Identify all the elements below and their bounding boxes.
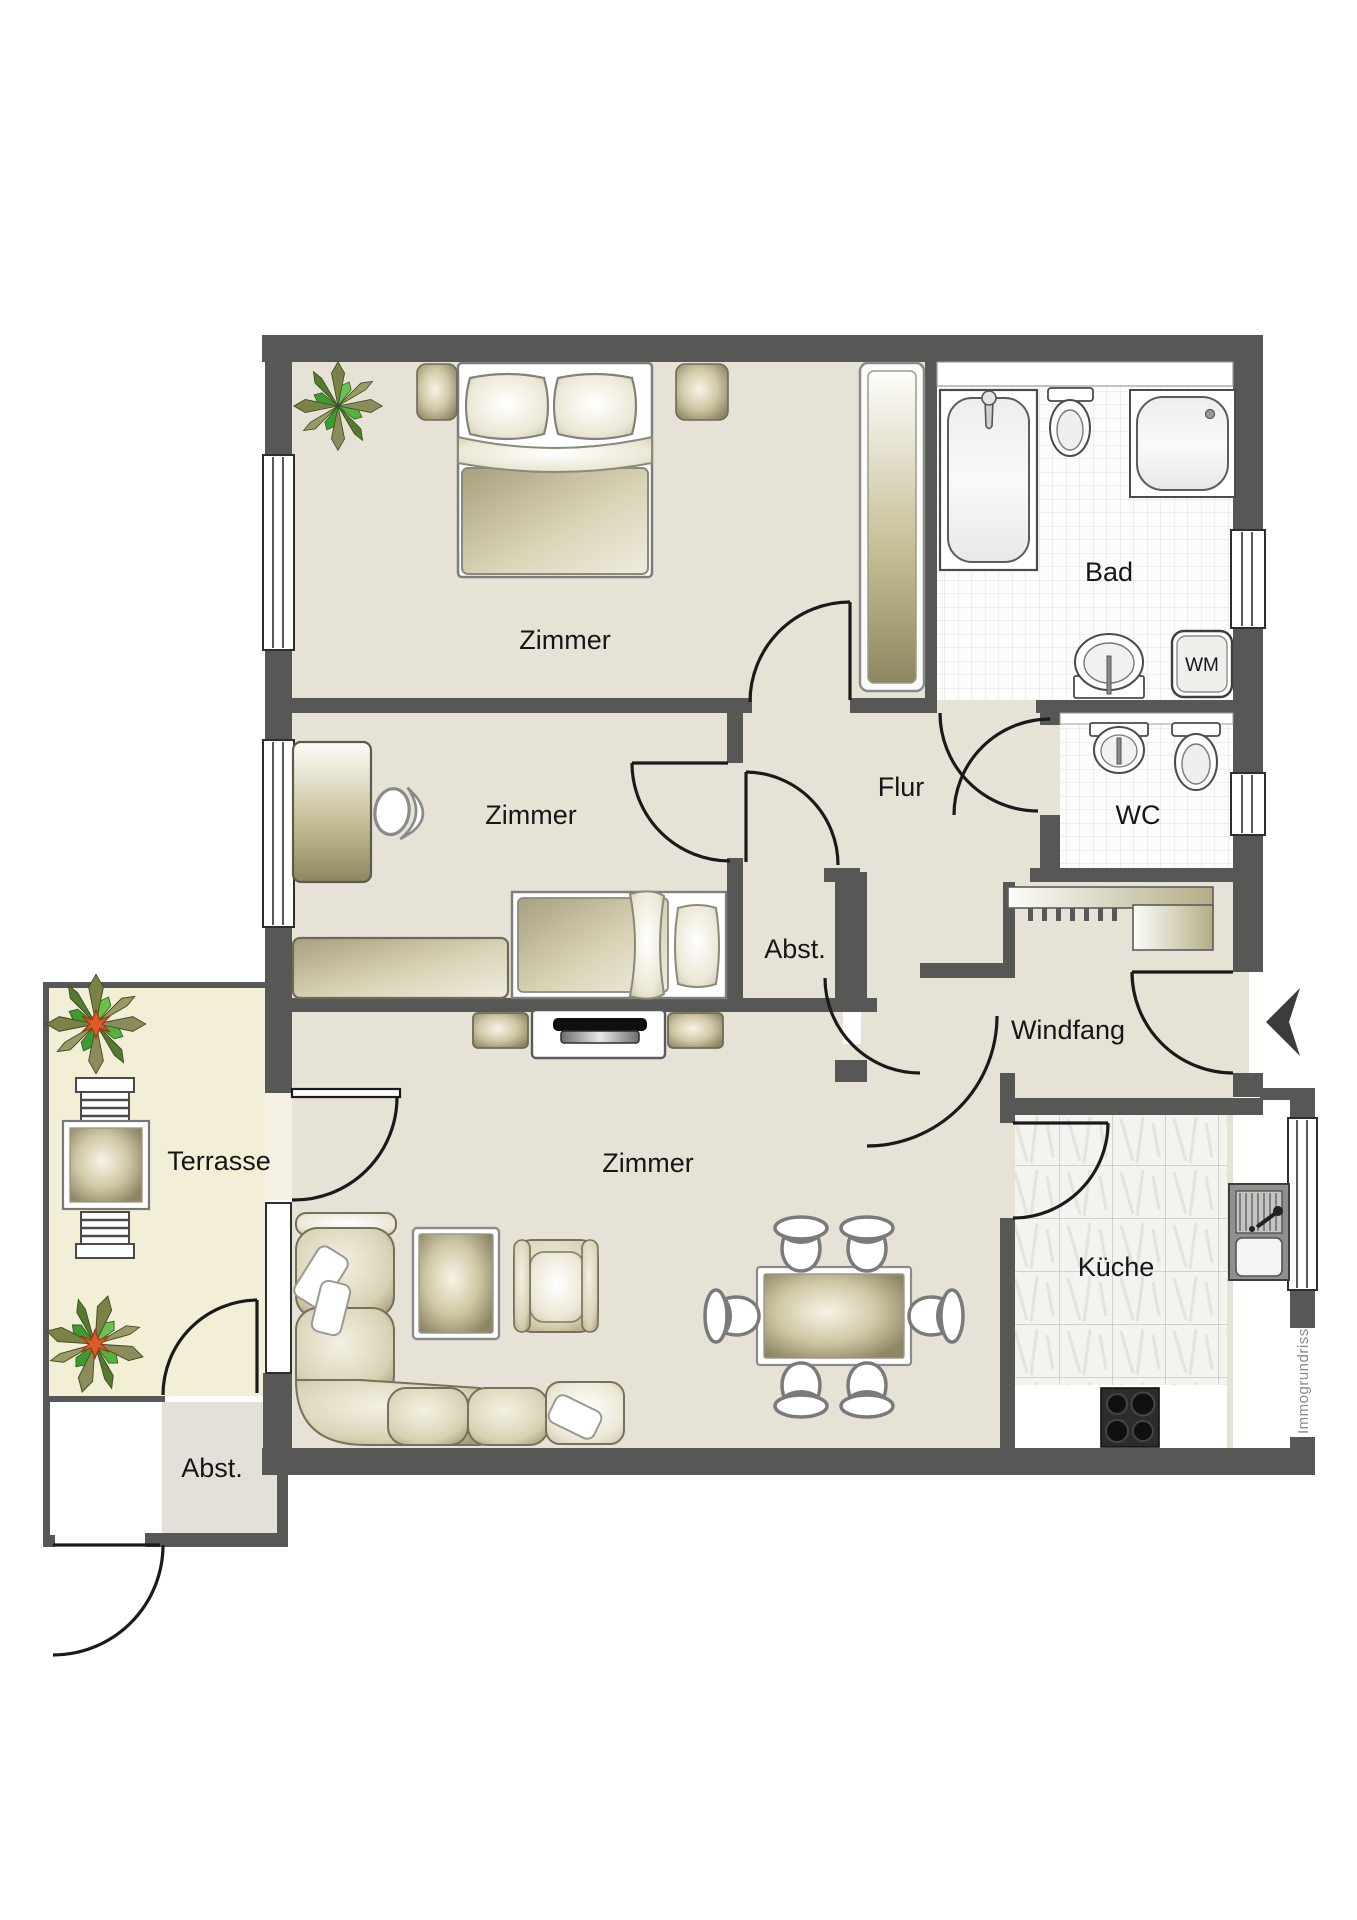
- wall-left-3: [265, 925, 292, 1093]
- pillow: [466, 374, 548, 439]
- window-bedroom1-left: [263, 455, 294, 650]
- storage-bottom-wall-bottom: [145, 1533, 288, 1547]
- drain-icon: [1206, 410, 1215, 419]
- wall-vestibule-divider: [920, 963, 1015, 978]
- terrace-table: [63, 1121, 149, 1209]
- window-wc-right: [1231, 773, 1265, 835]
- wall-bedroom1-bottom-right: [850, 698, 937, 713]
- label-kitchen: Küche: [1078, 1252, 1155, 1282]
- wall-bottom: [262, 1448, 1315, 1475]
- label-vestibule: Windfang: [1011, 1015, 1125, 1045]
- speaker-left: [473, 1013, 528, 1048]
- single-bed: [512, 891, 726, 998]
- wall-right-4: [1233, 1073, 1263, 1097]
- kitchen-sink: [1229, 1184, 1289, 1280]
- sink-basin: [1236, 1238, 1282, 1276]
- window-bedroom2-left: [263, 740, 294, 927]
- wall-storage-mid-top-stub: [824, 868, 860, 882]
- entrance-threshold: [1233, 972, 1249, 1073]
- wall-right-3: [1233, 833, 1263, 972]
- tv-lowboard: [532, 1010, 665, 1058]
- toilet-bath: [1048, 388, 1093, 456]
- watermark-text: Immogrundriss: [1295, 1328, 1312, 1434]
- pillow: [675, 905, 719, 987]
- nightstand: [676, 364, 728, 420]
- window-living-left: [266, 1203, 291, 1373]
- burner-icon: [1106, 1420, 1128, 1442]
- wardrobe-tall: [860, 363, 924, 691]
- wall-storage-mid-left: [727, 858, 743, 1012]
- wall-kitchen-top: [1015, 1098, 1263, 1115]
- window-band-bath-top: [937, 362, 1233, 386]
- passage-wall-left: [43, 1402, 50, 1547]
- washing-machine: WM: [1172, 631, 1232, 697]
- wall-right-1: [1233, 335, 1263, 532]
- door-leaf-terrace: [292, 1089, 400, 1097]
- pillow: [554, 374, 636, 439]
- wall-bath-bottom: [1036, 700, 1233, 713]
- wall-kitchen-left-2: [1000, 1218, 1015, 1448]
- terrace-border-top: [43, 982, 267, 988]
- kitchen-tile-floor: [1015, 1115, 1227, 1385]
- burner-icon: [1132, 1393, 1155, 1416]
- speaker-right: [668, 1013, 723, 1048]
- bolster-pillow: [630, 891, 664, 998]
- washbasin-bath: [1074, 634, 1144, 698]
- wall-bedrooms-divider: [292, 698, 752, 713]
- faucet-icon: [1117, 738, 1121, 764]
- label-wc: WC: [1116, 800, 1161, 830]
- tv-icon: [553, 1018, 647, 1031]
- wall-wc-bottom: [1030, 868, 1233, 882]
- coat-rack-cabinet: [1133, 905, 1213, 950]
- entrance-arrow-icon: [1266, 988, 1300, 1056]
- wall-left-1: [265, 335, 292, 457]
- floorplan-canvas: WM: [0, 0, 1357, 1920]
- nightstand: [417, 364, 457, 420]
- bathtub: [940, 390, 1037, 570]
- wall-right-step: [1260, 1088, 1292, 1100]
- storage-bottom-wall-right: [277, 1393, 288, 1547]
- stove: [1101, 1388, 1159, 1447]
- label-bath: Bad: [1085, 557, 1133, 587]
- desk: [293, 742, 371, 882]
- wall-kitchen-left-1: [1000, 1073, 1015, 1123]
- label-bedroom1: Zimmer: [519, 625, 610, 655]
- toilet-wc: [1172, 723, 1220, 790]
- label-storage-mid: Abst.: [764, 934, 826, 964]
- faucet-icon: [1107, 656, 1111, 694]
- burner-icon: [1107, 1394, 1127, 1414]
- floorplan-page: WM: [0, 0, 1357, 1920]
- label-living: Zimmer: [602, 1148, 693, 1178]
- wall-right-2: [1233, 626, 1263, 777]
- window-bath-right: [1231, 530, 1265, 628]
- door-arc-garden-gate: [53, 1545, 163, 1655]
- armchair: [514, 1240, 598, 1332]
- wall-column-2: [835, 1060, 867, 1082]
- label-bedroom2: Zimmer: [485, 800, 576, 830]
- wall-column-1: [835, 872, 867, 1012]
- wall-kitchen-right-1: [1290, 1088, 1315, 1120]
- burner-icon: [1133, 1421, 1153, 1441]
- terrace-bench-top: [76, 1078, 134, 1124]
- sideboard: [293, 938, 508, 998]
- window-kitchen-right: [1288, 1118, 1317, 1290]
- shower: [1130, 390, 1235, 497]
- washing-machine-label: WM: [1185, 655, 1219, 676]
- label-storage-bottom: Abst.: [181, 1453, 243, 1483]
- dining-table: [764, 1274, 904, 1358]
- wall-kitchen-right-2: [1290, 1288, 1315, 1328]
- label-hallway: Flur: [878, 772, 925, 802]
- terrace-bench-bottom: [76, 1212, 134, 1258]
- coffee-table: [413, 1228, 499, 1339]
- double-bed: [458, 363, 652, 577]
- wall-top: [262, 335, 1263, 362]
- terrace-border-left: [43, 982, 49, 1402]
- wall-left-2: [265, 648, 292, 742]
- wall-bedroom2-stub: [727, 713, 743, 763]
- label-terrace: Terrasse: [167, 1146, 271, 1176]
- wall-bath-left: [925, 362, 937, 700]
- terrace-border-bottom: [43, 1396, 165, 1402]
